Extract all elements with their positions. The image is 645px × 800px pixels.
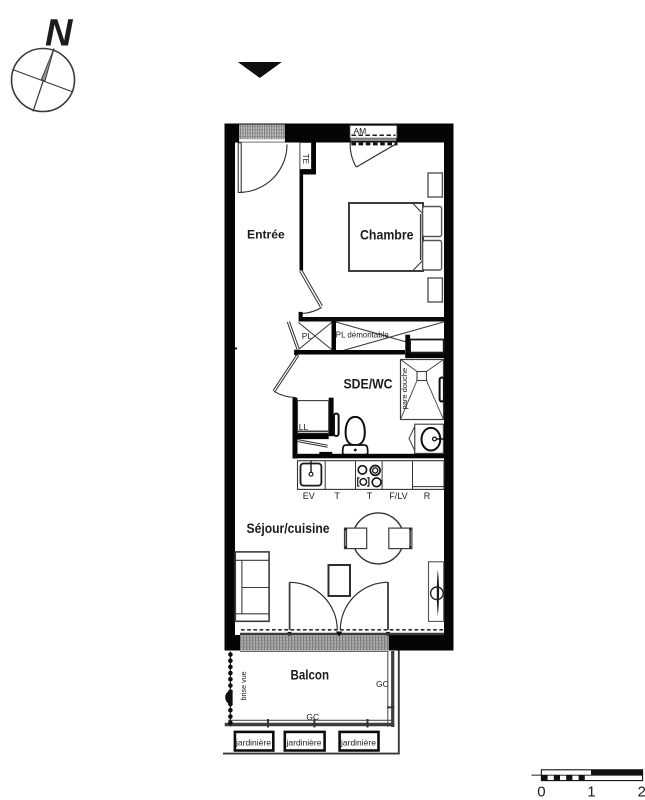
svg-text:LL: LL	[299, 422, 309, 432]
svg-text:R: R	[424, 491, 431, 501]
svg-text:Entrée: Entrée	[247, 228, 285, 242]
svg-text:0: 0	[537, 784, 545, 800]
svg-text:SDE/WC: SDE/WC	[344, 376, 393, 391]
svg-text:N: N	[45, 13, 74, 55]
svg-text:GC: GC	[376, 679, 389, 689]
svg-text:EV: EV	[303, 491, 315, 501]
svg-text:jardinière: jardinière	[340, 738, 376, 748]
svg-text:T: T	[334, 491, 340, 501]
svg-text:pare douche: pare douche	[400, 368, 409, 410]
svg-text:1: 1	[587, 784, 595, 800]
svg-text:Séjour/cuisine: Séjour/cuisine	[247, 520, 330, 536]
svg-text:TE: TE	[301, 154, 310, 164]
svg-text:PL démontable: PL démontable	[336, 329, 389, 339]
svg-text:jardinière: jardinière	[286, 738, 322, 748]
svg-text:Balcon: Balcon	[291, 668, 330, 683]
svg-text:Chambre: Chambre	[360, 227, 414, 242]
svg-text:jardinière: jardinière	[235, 738, 271, 748]
svg-text:brise vue: brise vue	[239, 671, 248, 700]
svg-text:2: 2	[638, 784, 645, 800]
svg-text:GC: GC	[306, 712, 319, 722]
svg-text:F/LV: F/LV	[389, 491, 407, 501]
svg-text:T: T	[367, 491, 373, 501]
svg-text:PL: PL	[302, 331, 313, 341]
svg-text:AM: AM	[354, 126, 367, 136]
